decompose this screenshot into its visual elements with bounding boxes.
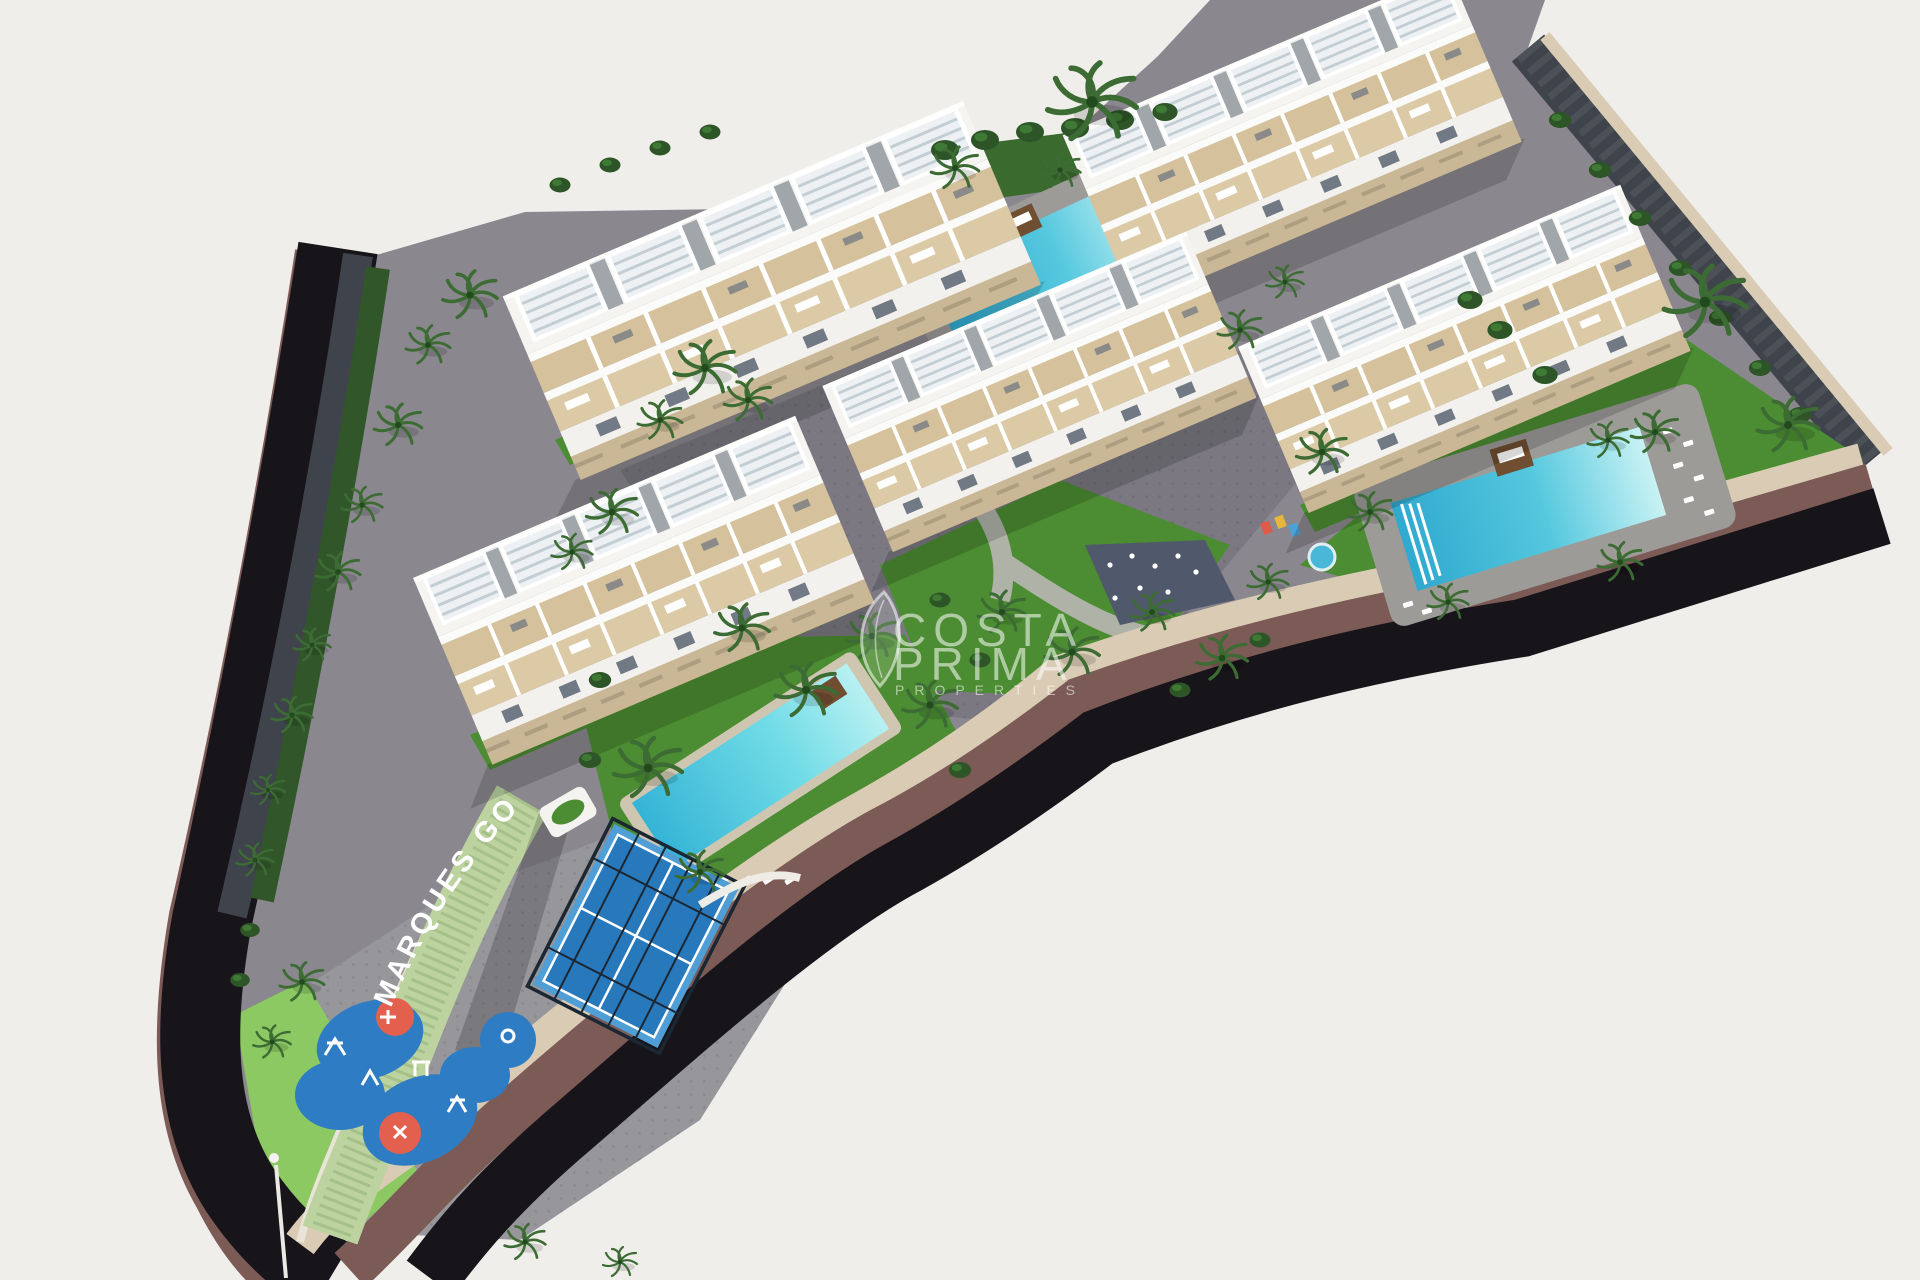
- render-canvas: MARQUES GOLF: [0, 0, 1920, 1280]
- watermark: COSTA PRIMA PROPERTIES: [862, 592, 1085, 698]
- watermark-line3: PROPERTIES: [895, 682, 1085, 698]
- kids-pool: [1309, 544, 1335, 570]
- aerial-render: MARQUES GOLF: [0, 0, 1920, 1280]
